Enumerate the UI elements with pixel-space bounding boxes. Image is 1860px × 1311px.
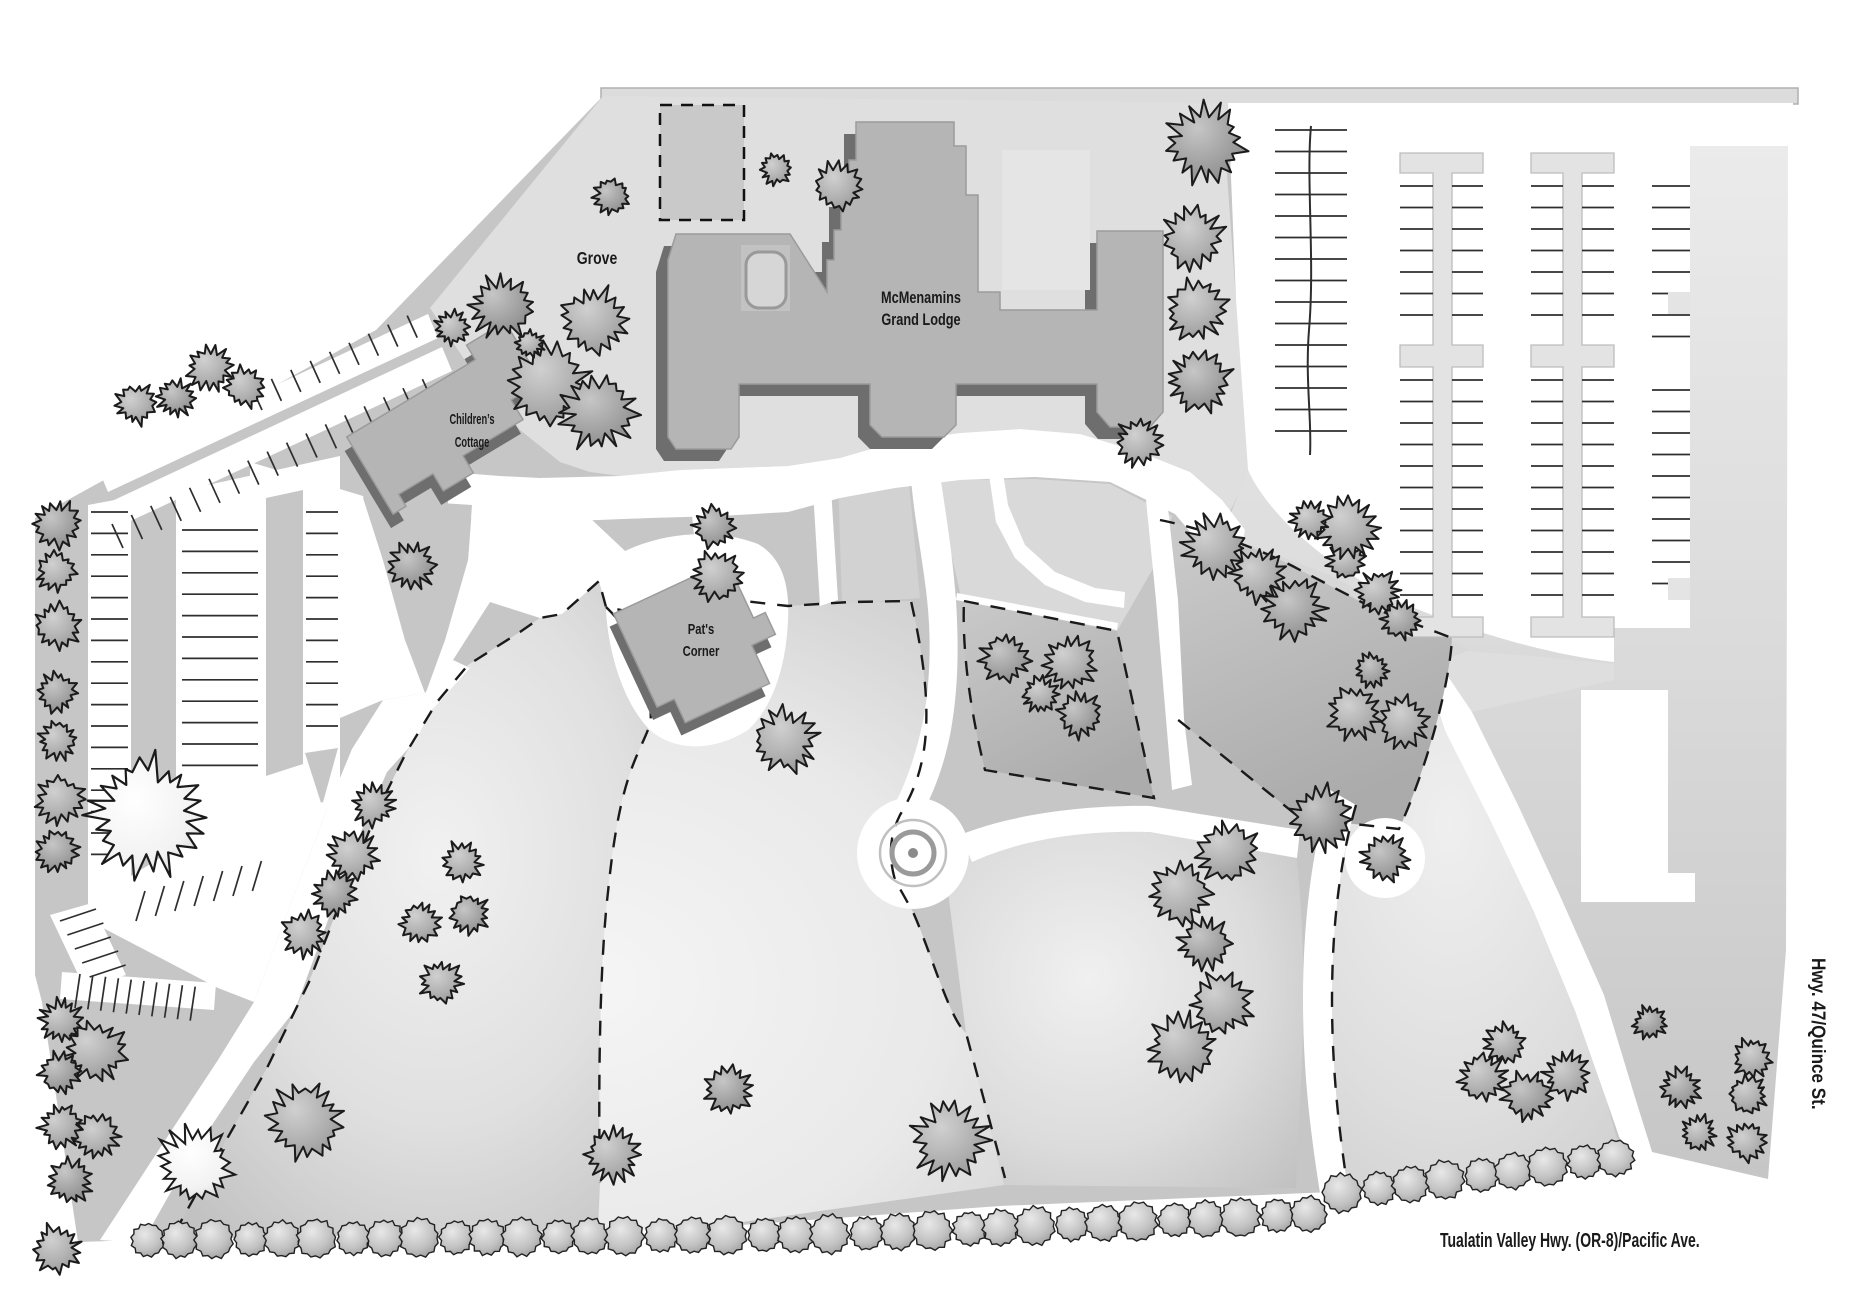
svg-text:Hwy. 47/Quince St.: Hwy. 47/Quince St.: [1808, 958, 1829, 1110]
svg-text:Corner: Corner: [683, 642, 720, 659]
svg-text:Pat's: Pat's: [688, 620, 714, 637]
svg-text:Tualatin Valley Hwy. (OR-8)/Pa: Tualatin Valley Hwy. (OR-8)/Pacific Ave.: [1440, 1228, 1700, 1251]
svg-text:Grand Lodge: Grand Lodge: [881, 310, 960, 329]
svg-text:Cottage: Cottage: [455, 434, 490, 451]
svg-text:McMenamins: McMenamins: [881, 288, 961, 307]
svg-text:Grove: Grove: [577, 248, 618, 268]
svg-text:Children’s: Children’s: [449, 411, 494, 428]
